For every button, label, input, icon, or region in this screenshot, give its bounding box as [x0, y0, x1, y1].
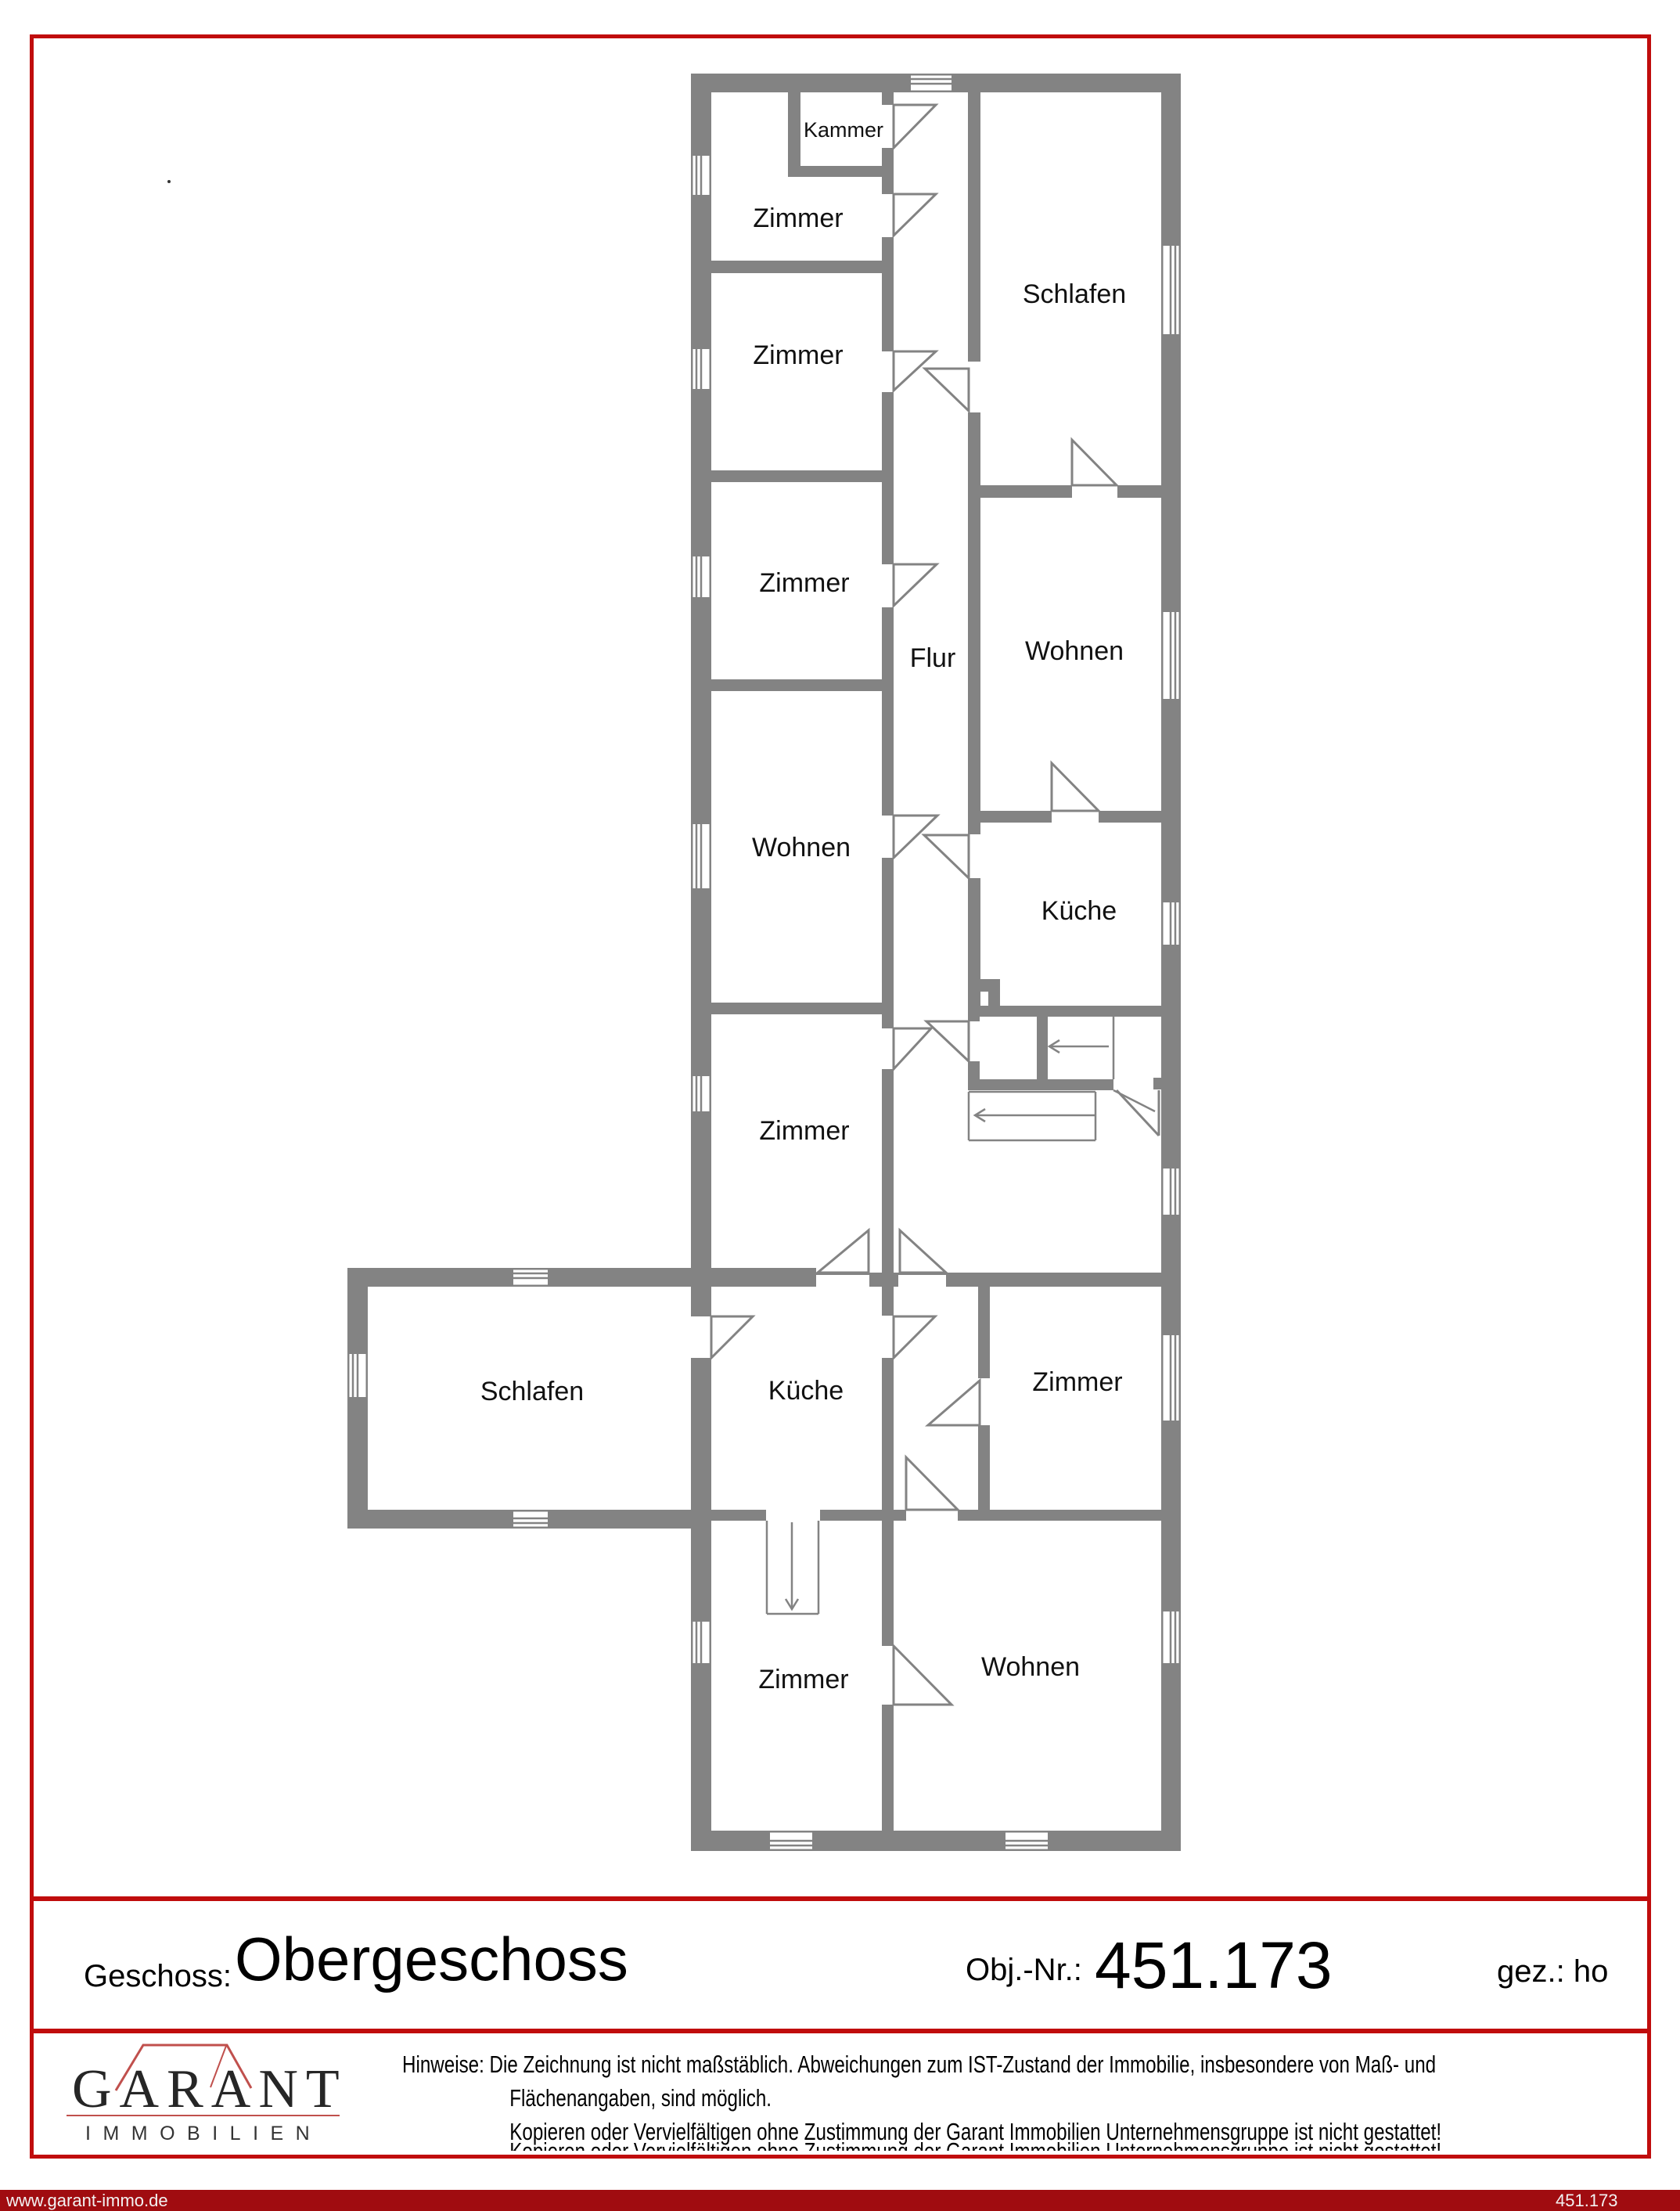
svg-text:Zimmer: Zimmer: [1032, 1367, 1122, 1397]
svg-text:Zimmer: Zimmer: [753, 203, 843, 233]
svg-text:Flur: Flur: [910, 643, 956, 673]
svg-text:Zimmer: Zimmer: [759, 1116, 849, 1146]
svg-text:Wohnen: Wohnen: [1025, 636, 1124, 666]
svg-text:Wohnen: Wohnen: [752, 833, 851, 862]
svg-text:Küche: Küche: [1041, 896, 1117, 926]
svg-text:IMMOBILIEN: IMMOBILIEN: [85, 2123, 322, 2144]
svg-text:Schlafen: Schlafen: [1023, 279, 1126, 309]
svg-text:Zimmer: Zimmer: [753, 340, 843, 370]
svg-text:Zimmer: Zimmer: [759, 568, 849, 598]
svg-text:GARANT: GARANT: [72, 2059, 347, 2119]
svg-text:Wohnen: Wohnen: [981, 1652, 1080, 1682]
svg-text:Zimmer: Zimmer: [758, 1665, 848, 1694]
svg-text:Schlafen: Schlafen: [480, 1377, 584, 1406]
svg-text:Küche: Küche: [768, 1376, 844, 1406]
svg-text:Kammer: Kammer: [804, 118, 883, 142]
